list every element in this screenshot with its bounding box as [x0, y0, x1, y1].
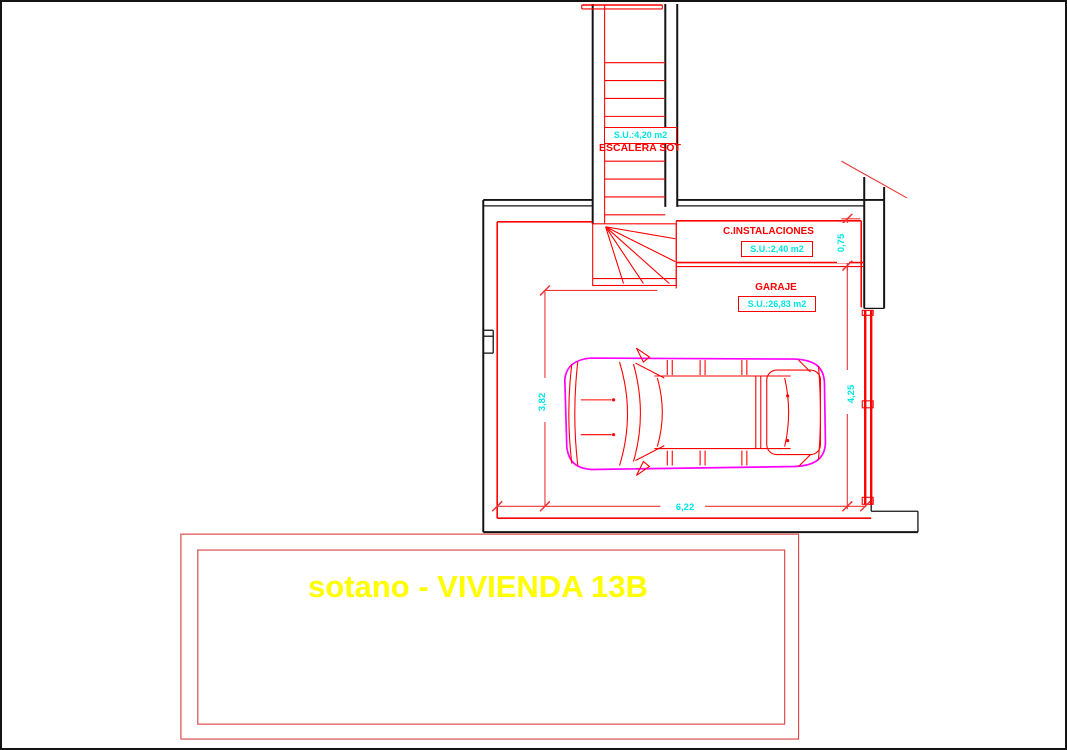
floor-plan-canvas: S.U.:4,20 m2 ESCALERA SOT C.INSTALACIONE… [0, 0, 1067, 750]
garage-door [862, 310, 873, 504]
garaje-area-label: S.U.:26,83 m2 [738, 296, 816, 312]
stair-name-label: ESCALERA SOT [599, 143, 677, 154]
car-body-outline [565, 358, 826, 469]
dim-garage-height-left: 3,82 [538, 382, 550, 422]
instalaciones-area-label: S.U.:2,40 m2 [741, 241, 813, 257]
stair-winder [593, 224, 677, 286]
car-mirror-top [636, 348, 649, 362]
basement-title: sotano - VIVIENDA 13B [308, 569, 648, 605]
title-frame [181, 534, 799, 739]
wall-break-line [841, 161, 907, 198]
dim-garage-width-bottom: 6,22 [665, 503, 705, 515]
dim-instalaciones-depth: 0,75 [837, 223, 849, 263]
garaje-name-label: GARAJE [748, 283, 804, 293]
instalaciones-name-label: C.INSTALACIONES [723, 227, 809, 237]
car-drawing [565, 348, 826, 475]
wall-vent-box [483, 330, 493, 353]
plan-linework [2, 2, 1065, 748]
dim-garage-height-right: 4,25 [847, 374, 859, 414]
interior-wall-faces [497, 161, 907, 518]
